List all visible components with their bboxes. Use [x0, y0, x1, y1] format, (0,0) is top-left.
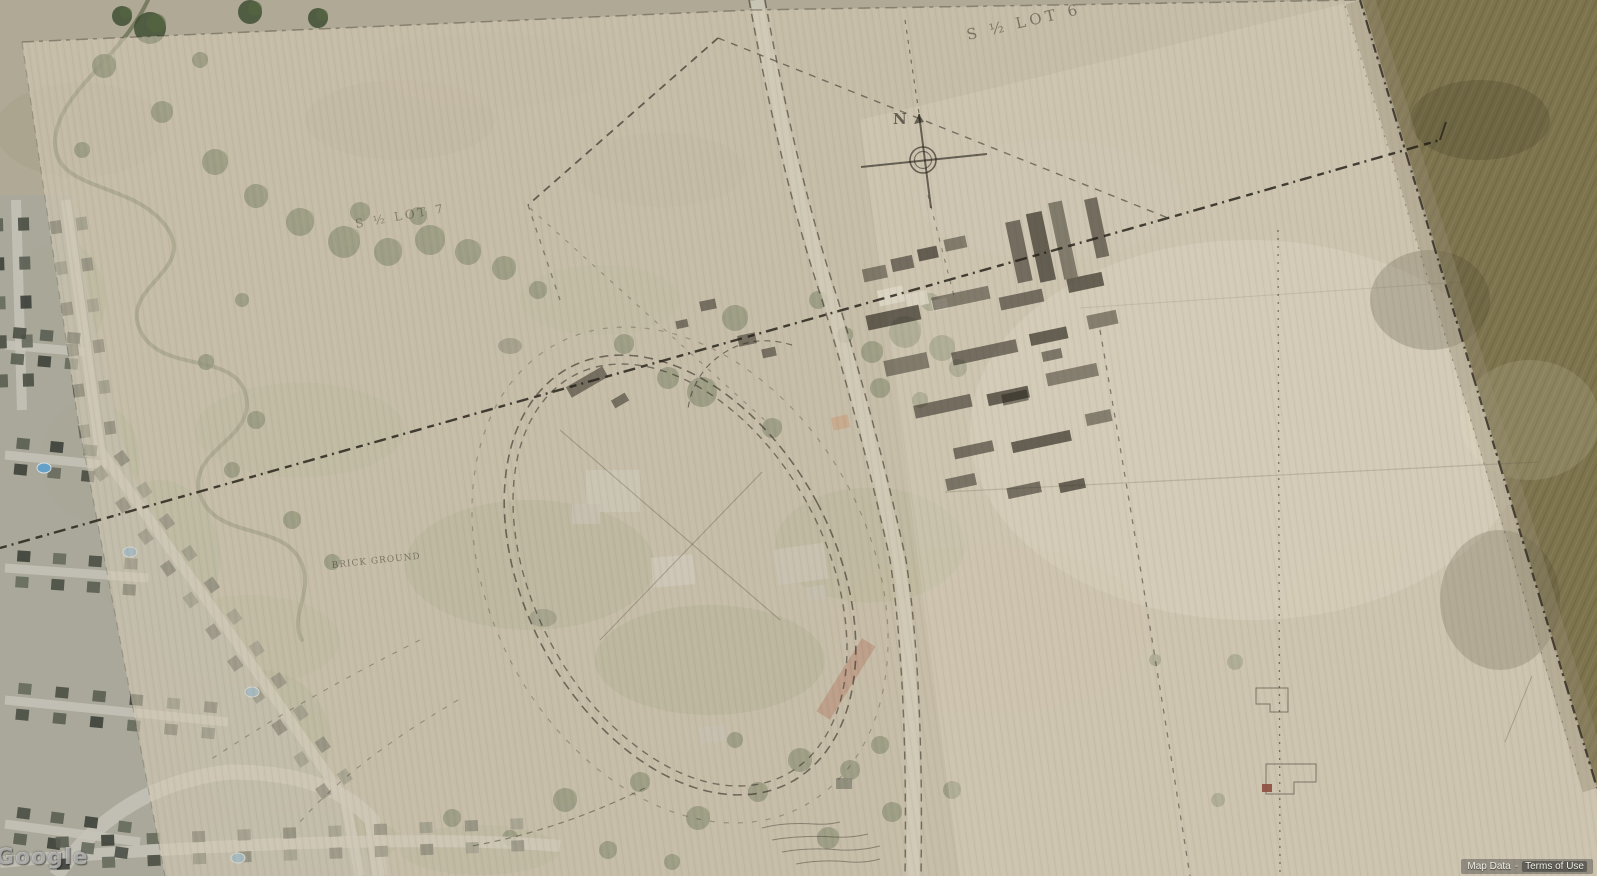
attribution-bar: Map Data-Terms of Use: [1461, 859, 1593, 874]
map-canvas[interactable]: N S ½ LOT 6 S ½ LOT 7 BRICK GROUND Googl…: [0, 0, 1597, 876]
map-scene: N S ½ LOT 6 S ½ LOT 7 BRICK GROUND: [0, 0, 1597, 876]
north-label: N: [893, 110, 907, 128]
map-data-label: Map Data: [1467, 861, 1510, 872]
historic-map-overlay: N S ½ LOT 6 S ½ LOT 7 BRICK GROUND: [0, 0, 1597, 876]
terms-of-use-link[interactable]: Terms of Use: [1522, 861, 1587, 872]
google-logo[interactable]: Google: [0, 845, 89, 870]
attribution-separator: -: [1515, 861, 1518, 872]
red-shed: [1262, 784, 1272, 792]
